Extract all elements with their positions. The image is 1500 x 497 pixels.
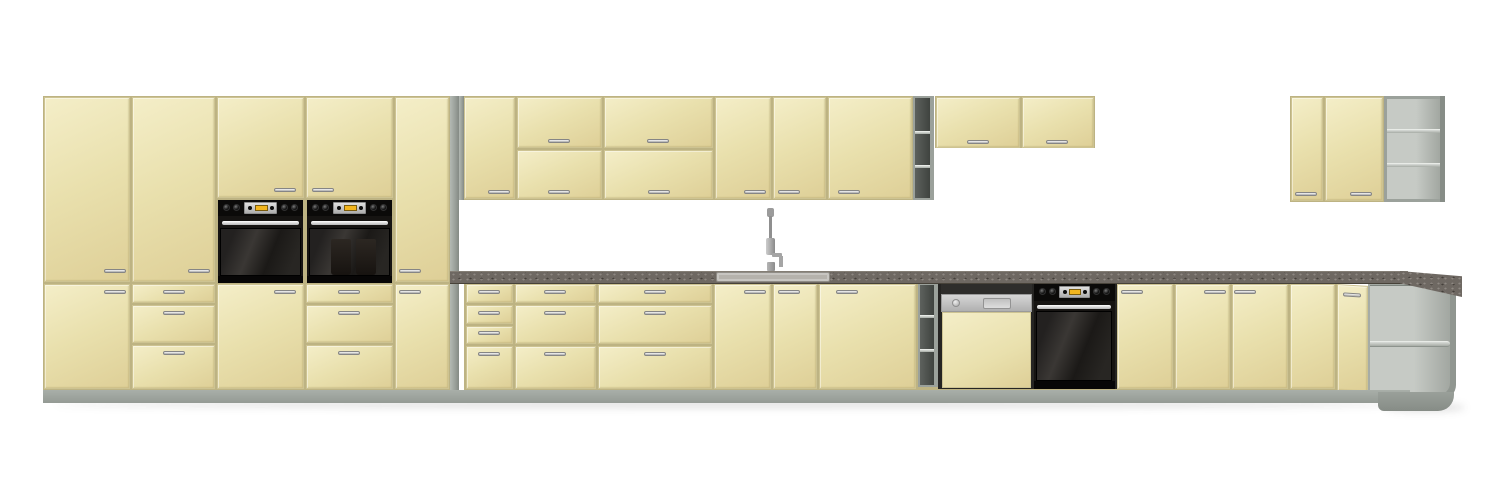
- drawer-handle: [644, 311, 666, 315]
- drawer-handle: [478, 352, 500, 356]
- dishwasher-top-gap: [941, 283, 1032, 294]
- tall-cabinet-door: [44, 97, 130, 282]
- door-handle: [274, 290, 296, 294]
- oven-button: [359, 206, 363, 210]
- oven-button: [1063, 290, 1067, 294]
- oven-door-glass: [1036, 311, 1112, 381]
- door-handle: [836, 290, 858, 294]
- pot-silhouette: [356, 239, 376, 275]
- door-handle: [548, 190, 570, 194]
- oven-housing-bottom-door: [217, 284, 304, 389]
- door-handle: [488, 190, 510, 194]
- oven-display: [255, 205, 268, 211]
- shelf-cavity: [1387, 99, 1440, 199]
- shelf-cavity: [1370, 285, 1450, 395]
- wall-cabinet-door: [828, 97, 912, 199]
- oven-display: [344, 205, 357, 211]
- tall-cabinet-door: [395, 284, 449, 389]
- built-in-oven: [1034, 283, 1115, 389]
- countertop: [450, 271, 1408, 284]
- pot-silhouette: [331, 239, 351, 275]
- oven-display-panel: [1059, 286, 1090, 298]
- drawer-handle: [478, 290, 500, 294]
- oven-button: [270, 206, 274, 210]
- dishwasher-handle: [983, 298, 1011, 309]
- shelf: [1370, 341, 1450, 347]
- wall-cabinet-door: [715, 97, 771, 199]
- drawer-handle: [478, 311, 500, 315]
- sink-drainer: [716, 272, 830, 282]
- drawer-handle: [544, 311, 566, 315]
- base-cabinet-door: [1175, 284, 1230, 389]
- door-handle: [1295, 192, 1317, 196]
- wall-oven-left: [218, 200, 303, 283]
- shelf: [1387, 129, 1440, 133]
- dishwasher: [941, 283, 1032, 389]
- drawer-handle: [338, 311, 360, 315]
- oven-base-strip: [1034, 381, 1115, 389]
- oven-display: [1069, 289, 1081, 295]
- wall-cabinet-door: [1291, 97, 1323, 201]
- oven-knob: [1049, 288, 1056, 295]
- wall-cabinet-door: [1325, 97, 1383, 201]
- plinth: [43, 390, 1410, 403]
- base-cabinet-door: [1290, 284, 1335, 389]
- shelf: [915, 165, 930, 168]
- door-handle: [838, 190, 860, 194]
- oven-control-panel: [218, 200, 303, 216]
- drawer-handle: [544, 290, 566, 294]
- drawer-handle: [163, 351, 185, 355]
- door-handle: [1121, 290, 1143, 294]
- oven-housing-top-door: [306, 97, 393, 198]
- shelf-cavity: [915, 98, 930, 198]
- corner-open-shelf: [1368, 283, 1456, 399]
- door-handle: [548, 139, 570, 143]
- shelf: [915, 131, 930, 134]
- oven-handle-bar: [222, 221, 299, 225]
- oven-button: [248, 206, 252, 210]
- corner-base-door: [1337, 284, 1368, 393]
- open-shelf-unit: [918, 283, 938, 387]
- sink-base-door: [714, 284, 771, 389]
- oven-base-strip: [218, 276, 303, 283]
- oven-knob: [1093, 288, 1100, 295]
- door-handle: [778, 190, 800, 194]
- oven-knob: [291, 204, 298, 211]
- oven-knob: [322, 204, 329, 211]
- door-handle: [312, 188, 334, 192]
- door-handle: [1204, 290, 1226, 294]
- door-handle: [647, 139, 669, 143]
- oven-knob: [312, 204, 319, 211]
- oven-handle-bar: [311, 221, 388, 225]
- drawer-handle: [544, 352, 566, 356]
- sink-base-door: [773, 284, 817, 389]
- tall-cabinet-door: [395, 97, 449, 282]
- door-handle: [188, 269, 210, 273]
- plinth: [1378, 392, 1454, 411]
- door-handle: [744, 190, 766, 194]
- drawer-handle: [163, 290, 185, 294]
- door-handle: [967, 140, 989, 144]
- oven-housing-top-door: [217, 97, 304, 198]
- kitchen-set-render: [0, 0, 1500, 497]
- drawer-front: [466, 326, 513, 344]
- shelf: [1387, 163, 1440, 167]
- door-handle: [1234, 290, 1256, 294]
- dishwasher-control-panel: [941, 294, 1032, 312]
- drawer-handle: [338, 351, 360, 355]
- door-handle: [778, 290, 800, 294]
- door-handle: [1046, 140, 1068, 144]
- wall-oven-right: [307, 200, 392, 283]
- shelf-cavity: [920, 285, 934, 385]
- drawer-handle: [163, 311, 185, 315]
- base-cabinet-door: [1232, 284, 1288, 389]
- door-handle: [274, 188, 296, 192]
- drawer-handle: [478, 331, 500, 335]
- oven-control-panel: [1034, 283, 1115, 301]
- door-handle: [104, 269, 126, 273]
- oven-base-strip: [307, 276, 392, 283]
- oven-knob: [1039, 288, 1046, 295]
- faucet-base: [767, 262, 775, 271]
- base-cabinet-door: [1117, 284, 1173, 389]
- wall-cabinet-door: [773, 97, 826, 199]
- door-handle: [1343, 292, 1361, 297]
- oven-handle-bar: [1037, 305, 1111, 309]
- side-panel-edge: [1440, 96, 1445, 202]
- oven-knob: [370, 204, 377, 211]
- oven-knob: [223, 204, 230, 211]
- oven-door-glass: [220, 228, 301, 276]
- dishwasher-front-panel: [942, 312, 1031, 388]
- tall-run-end-panel: [450, 96, 459, 390]
- door-handle: [104, 290, 126, 294]
- door-handle: [1350, 192, 1372, 196]
- oven-knob: [380, 204, 387, 211]
- door-handle: [744, 290, 766, 294]
- oven-button: [337, 206, 341, 210]
- drawer-handle: [338, 290, 360, 294]
- drawer-handle: [644, 352, 666, 356]
- open-shelf-unit: [913, 96, 934, 200]
- door-handle: [399, 269, 421, 273]
- base-cabinet-door: [819, 284, 916, 389]
- oven-knob: [233, 204, 240, 211]
- oven-knob: [281, 204, 288, 211]
- door-handle: [399, 290, 421, 294]
- door-handle: [648, 190, 670, 194]
- oven-display-panel: [333, 202, 366, 214]
- shelf: [920, 315, 934, 318]
- oven-door-glass: [309, 228, 390, 276]
- oven-display-panel: [244, 202, 277, 214]
- oven-control-panel: [307, 200, 392, 216]
- tall-cabinet-door: [132, 97, 215, 282]
- dishwasher-power-button: [952, 299, 960, 307]
- drawer-handle: [644, 290, 666, 294]
- faucet-spout-drop: [779, 256, 783, 267]
- open-shelf-unit: [1384, 96, 1445, 202]
- faucet: [760, 208, 790, 272]
- oven-button: [1083, 290, 1087, 294]
- oven-knob: [1103, 288, 1110, 295]
- wall-cabinet-door: [464, 97, 515, 199]
- tall-cabinet-door: [44, 284, 130, 389]
- shelf: [920, 349, 934, 352]
